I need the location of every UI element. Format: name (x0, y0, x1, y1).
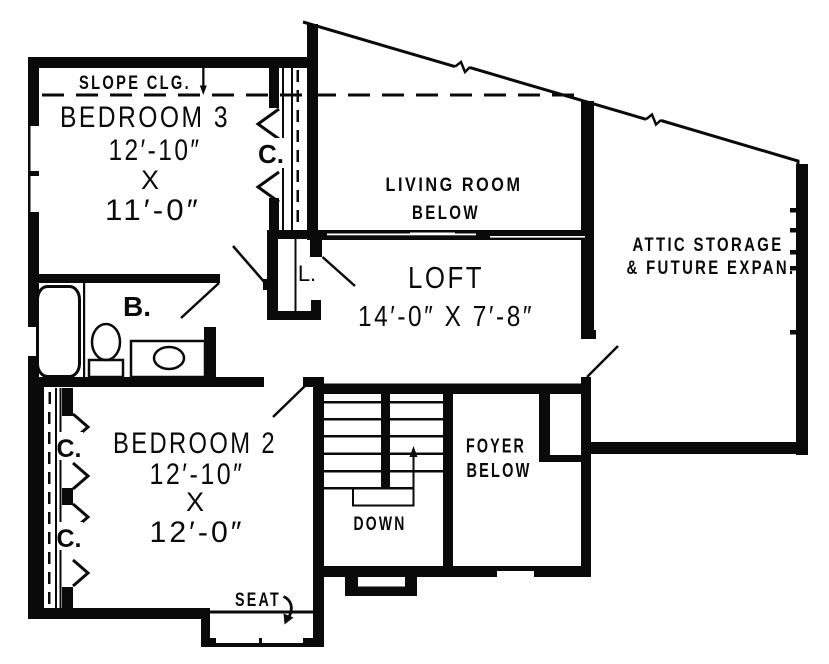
svg-text:FOYER: FOYER (466, 436, 526, 458)
svg-text:12′-0″: 12′-0″ (150, 516, 245, 549)
svg-text:14′-0″ X 7′-8″: 14′-0″ X 7′-8″ (358, 301, 534, 333)
svg-text:11′-0″: 11′-0″ (105, 194, 201, 227)
svg-text:L.: L. (298, 261, 316, 286)
svg-text:SEAT: SEAT (235, 590, 281, 611)
svg-text:LOFT: LOFT (408, 260, 484, 295)
svg-text:BELOW: BELOW (412, 203, 480, 224)
svg-text:C.: C. (57, 525, 82, 553)
svg-text:ATTIC STORAGE: ATTIC STORAGE (633, 235, 784, 256)
svg-text:BEDROOM 2: BEDROOM 2 (113, 427, 277, 460)
svg-text:BELOW: BELOW (467, 460, 532, 482)
svg-text:C.: C. (258, 139, 284, 169)
svg-text:BEDROOM 3: BEDROOM 3 (60, 101, 230, 134)
svg-text:C.: C. (57, 435, 82, 463)
svg-text:12′-10″: 12′-10″ (109, 134, 202, 167)
svg-text:X: X (141, 165, 159, 195)
svg-text:& FUTURE EXPAN.: & FUTURE EXPAN. (627, 258, 796, 279)
svg-text:SLOPE CLG.: SLOPE CLG. (79, 73, 191, 94)
svg-text:DOWN: DOWN (354, 514, 407, 535)
svg-text:X: X (186, 487, 204, 517)
svg-text:LIVING ROOM: LIVING ROOM (386, 175, 523, 196)
svg-text:B.: B. (123, 291, 151, 322)
